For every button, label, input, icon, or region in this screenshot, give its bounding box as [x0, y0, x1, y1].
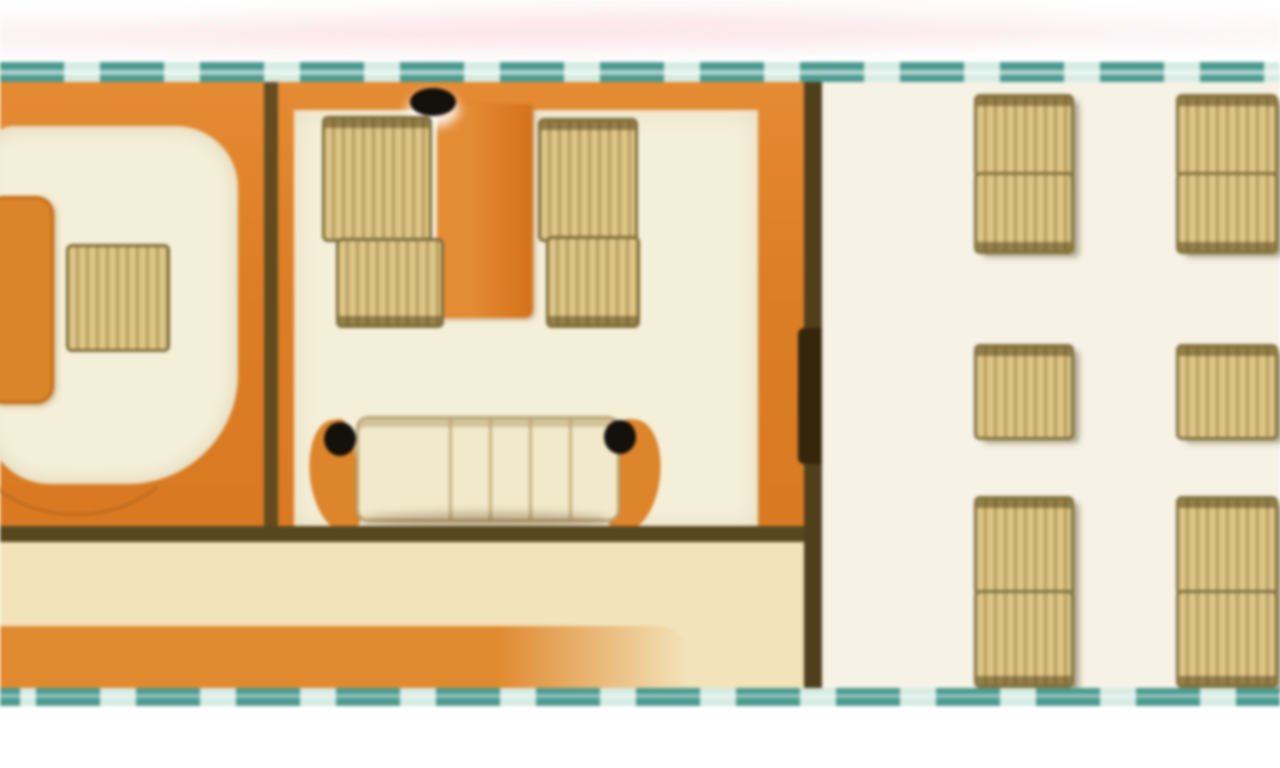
club-chair-middle-right: [1176, 344, 1278, 440]
corridor-orange-band: [0, 626, 690, 688]
dining-chair-bottom-left: [336, 238, 444, 328]
office-desk: [0, 196, 54, 404]
background-smudge: [0, 0, 1280, 60]
black-oval-fixture-sofa-right: [604, 420, 636, 454]
black-oval-fixture-sofa-left: [324, 422, 356, 456]
sofa: [356, 416, 620, 522]
club-chair-aft-left-upper: [974, 496, 1074, 596]
dining-chair-top-right: [538, 118, 638, 242]
club-chair-forward-right-lower: [1176, 172, 1278, 254]
floor-plan-canvas: [0, 0, 1280, 768]
club-chair-forward-left-upper: [974, 94, 1074, 178]
club-chair-middle-left: [974, 344, 1074, 440]
club-chair-aft-right-lower: [1176, 590, 1278, 688]
hull-line-highlight-bottom: [0, 694, 1280, 698]
dining-chair-bottom-right: [546, 236, 640, 328]
club-chair-aft-right-upper: [1176, 496, 1278, 596]
club-chair-aft-left-lower: [974, 590, 1074, 688]
dining-chair-top-left: [322, 116, 432, 242]
plan-blur-layer: [0, 0, 1280, 768]
club-chair-forward-right-upper: [1176, 94, 1278, 178]
wall-office-dining: [264, 82, 278, 528]
wall-cabins-corridor: [0, 526, 806, 542]
club-chair-forward-left-lower: [974, 172, 1074, 254]
hull-line-highlight-top: [0, 70, 1280, 75]
wall-dining-lounge: [804, 82, 822, 688]
sofa-cushion-lines: [359, 419, 617, 519]
office-desk-chair: [66, 244, 170, 352]
black-oval-fixture-top: [410, 88, 456, 116]
dining-center-table: [437, 104, 533, 318]
